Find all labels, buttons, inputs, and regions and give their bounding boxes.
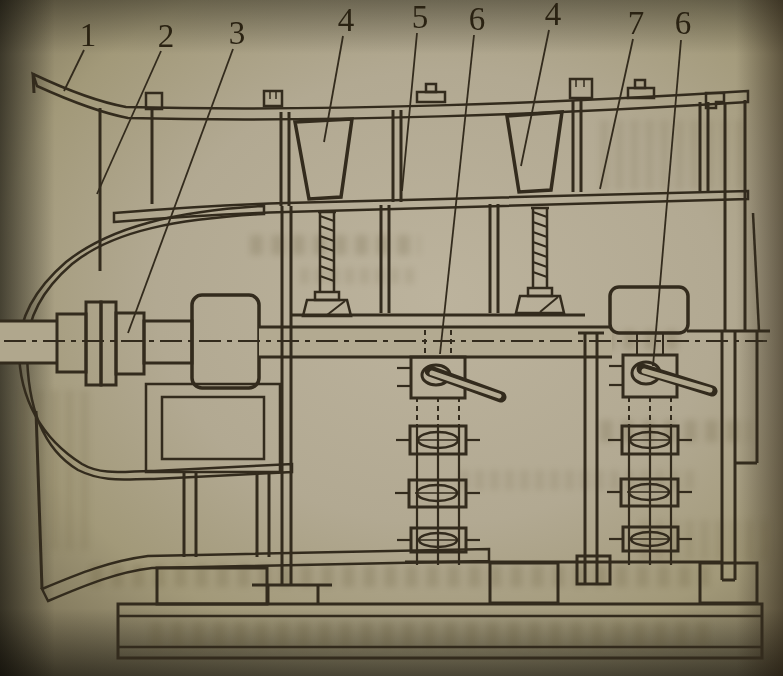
callout-label: 5 xyxy=(412,0,429,35)
coupling-flange xyxy=(101,302,116,385)
bearing-pedestal xyxy=(146,384,280,472)
shaft-section xyxy=(144,321,192,363)
book-page-photo: 1 2 3 4 5 6 4 7 6 xyxy=(0,0,783,676)
leader-line xyxy=(324,36,343,142)
coupling-flange xyxy=(86,302,101,385)
callout-label: 4 xyxy=(545,0,562,32)
support-block xyxy=(490,563,558,603)
bolt xyxy=(635,80,645,88)
support-block xyxy=(700,563,757,603)
damper-column-right xyxy=(607,333,712,565)
fan-cross-section-drawing: 1 2 3 4 5 6 4 7 6 xyxy=(0,0,783,676)
guide-vanes xyxy=(295,112,562,199)
leader-line xyxy=(64,50,84,91)
bearing-housing-right xyxy=(610,287,688,333)
bolt xyxy=(426,84,436,92)
leader-line xyxy=(440,35,474,354)
wall-foot xyxy=(577,556,610,584)
guide-vane xyxy=(295,119,352,199)
callout-label: 7 xyxy=(628,5,645,41)
callout-label: 6 xyxy=(675,5,692,41)
leader-line xyxy=(653,40,681,366)
callout-label: 3 xyxy=(229,15,246,51)
base-and-supports xyxy=(118,562,762,658)
base-frame xyxy=(118,604,762,658)
guide-vane xyxy=(507,112,562,192)
callout-labels: 1 2 3 4 5 6 4 7 6 xyxy=(80,0,692,54)
support-block xyxy=(157,568,267,604)
callout-label: 1 xyxy=(80,17,97,53)
leader-line xyxy=(521,30,549,166)
callout-label: 6 xyxy=(469,1,486,37)
leader-line xyxy=(600,39,633,189)
coupling-hub xyxy=(57,314,86,372)
adjusting-screw-left xyxy=(303,212,351,316)
callout-label: 2 xyxy=(158,18,175,54)
coupling-hub xyxy=(116,313,144,374)
damper-column-left xyxy=(395,330,501,565)
leader-line xyxy=(402,33,417,191)
inlet-cone xyxy=(19,206,292,479)
callout-label: 4 xyxy=(338,2,355,38)
adjusting-screw-right xyxy=(516,208,564,313)
